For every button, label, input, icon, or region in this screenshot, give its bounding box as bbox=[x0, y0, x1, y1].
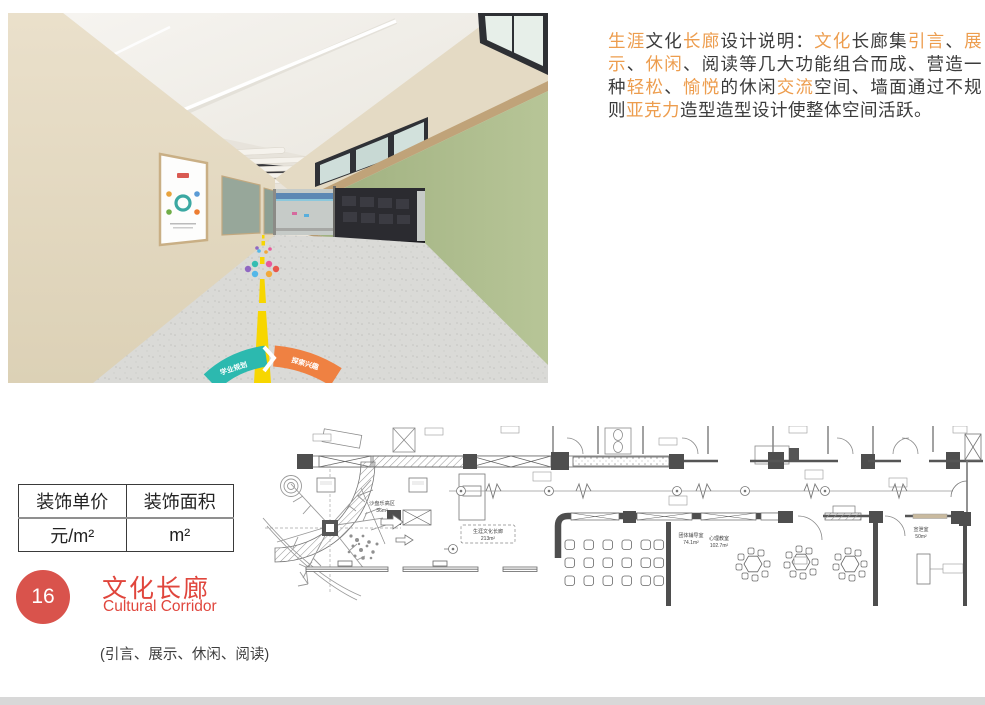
room-label-venting: 宣泄室 50m² bbox=[913, 526, 928, 540]
spec-table: 装饰单价 装饰面积 元/m² m² bbox=[18, 484, 234, 552]
room-label-corridor: 生涯文化长廊 213m² bbox=[444, 525, 515, 554]
svg-text:213m²: 213m² bbox=[481, 536, 496, 542]
plan-venting-room bbox=[873, 511, 967, 606]
header-unit-price: 装饰单价 bbox=[19, 485, 127, 519]
floor-plan: 沙盘乐高区 36m² bbox=[253, 426, 985, 608]
svg-text:102.7m²: 102.7m² bbox=[710, 543, 729, 549]
plan-group-room bbox=[558, 511, 822, 606]
value-unit-price: 元/m² bbox=[19, 518, 127, 552]
wall-poster bbox=[160, 154, 207, 245]
room-label-psych: 心理教室 102.7m² bbox=[709, 535, 729, 549]
header-area: 装饰面积 bbox=[126, 485, 234, 519]
section-number-badge: 16 bbox=[16, 570, 70, 624]
page-bottom-edge bbox=[0, 697, 985, 705]
chair-grid bbox=[565, 540, 664, 586]
slide-page: 学业规划 探索兴趣 生涯文化长廊设计说明：文化长廊集引言、展示、休闲、阅读等几大… bbox=[0, 0, 985, 705]
corridor-photo: 学业规划 探索兴趣 bbox=[8, 13, 548, 383]
svg-text:36m²: 36m² bbox=[376, 508, 388, 514]
svg-text:74.1m²: 74.1m² bbox=[683, 540, 699, 546]
table-value-row: 元/m² m² bbox=[19, 518, 234, 552]
section-subtitle: Cultural Corridor bbox=[103, 598, 217, 616]
table-header-row: 装饰单价 装饰面积 bbox=[19, 485, 234, 519]
plan-top-wall bbox=[297, 452, 983, 470]
design-description: 生涯文化长廊设计说明：文化长廊集引言、展示、休闲、阅读等几大功能组合而成、营造一… bbox=[608, 30, 982, 122]
plan-bottom-walls bbox=[306, 561, 537, 572]
plan-curved-wall bbox=[275, 462, 386, 562]
svg-text:生涯文化长廊: 生涯文化长廊 bbox=[473, 528, 503, 535]
svg-text:沙盘乐高区: 沙盘乐高区 bbox=[369, 499, 395, 507]
svg-text:心理教室: 心理教室 bbox=[709, 535, 729, 542]
section-note: (引言、展示、休闲、阅读) bbox=[100, 643, 269, 664]
svg-text:宣泄室: 宣泄室 bbox=[913, 526, 928, 533]
corridor-far-end bbox=[273, 186, 425, 244]
wall-glass-panel bbox=[222, 176, 260, 235]
svg-text:50m²: 50m² bbox=[915, 534, 927, 540]
value-area: m² bbox=[126, 518, 234, 552]
room-label-group: 团体辅导室 74.1m² bbox=[678, 532, 703, 546]
svg-text:团体辅导室: 团体辅导室 bbox=[678, 532, 703, 539]
corridor-render: 学业规划 探索兴趣 bbox=[8, 13, 548, 383]
pebble-path bbox=[348, 534, 379, 559]
